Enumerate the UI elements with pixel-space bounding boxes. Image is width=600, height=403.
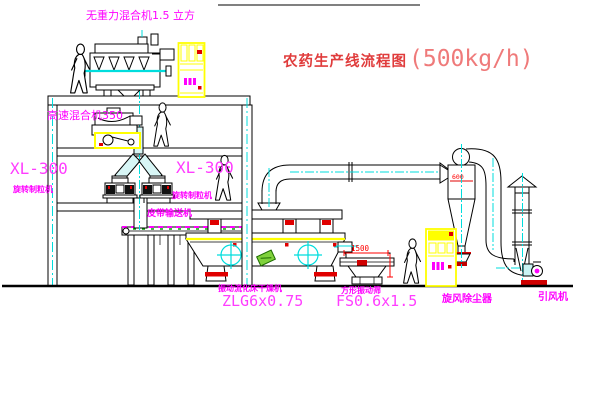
person-figure <box>154 103 171 146</box>
label-granulator-right-name: 旋转制粒机 <box>172 192 212 200</box>
label-granulator-left-model: XL-300 <box>10 161 68 177</box>
diagram-canvas: 1500 600 农药生产线流程图 (500kg/h) 无重力混合机1.5 立方… <box>0 0 600 403</box>
granulator-left <box>103 178 137 203</box>
person-figure <box>404 239 421 283</box>
title-capacity: (500kg/h) <box>409 46 534 72</box>
induced-draft-fan <box>521 262 547 285</box>
label-dryer-model: ZLG6x0.75 <box>222 294 303 309</box>
label-gravity-mixer: 无重力混合机1.5 立方 <box>86 10 195 21</box>
control-cabinet-top <box>179 43 205 97</box>
exhaust-duct <box>262 162 452 207</box>
title-text: 农药生产线流程图 <box>283 50 407 71</box>
label-high-speed-mixer: 高速混合机350 <box>47 110 123 121</box>
person-figure <box>71 44 90 93</box>
diagram-title: 农药生产线流程图 (500kg/h) <box>283 46 534 72</box>
fluid-bed-dryer <box>186 203 354 281</box>
label-granulator-left-name: 旋转制粒机 <box>13 186 53 194</box>
label-belt-conveyor: 皮带输送机 <box>147 210 192 219</box>
sieve-dimension-text: 1500 <box>351 244 370 253</box>
label-fan: 引风机 <box>538 293 568 303</box>
label-sieve-model: FS0.6x1.5 <box>336 294 417 309</box>
control-cabinet-right <box>426 229 456 286</box>
cyclone-dimension-text: 600 <box>452 173 464 181</box>
discharge-chute <box>134 198 147 228</box>
label-granulator-right-model: XL-300 <box>176 160 234 176</box>
gravity-mixer <box>80 30 174 96</box>
label-cyclone: 旋风除尘器 <box>442 295 492 305</box>
